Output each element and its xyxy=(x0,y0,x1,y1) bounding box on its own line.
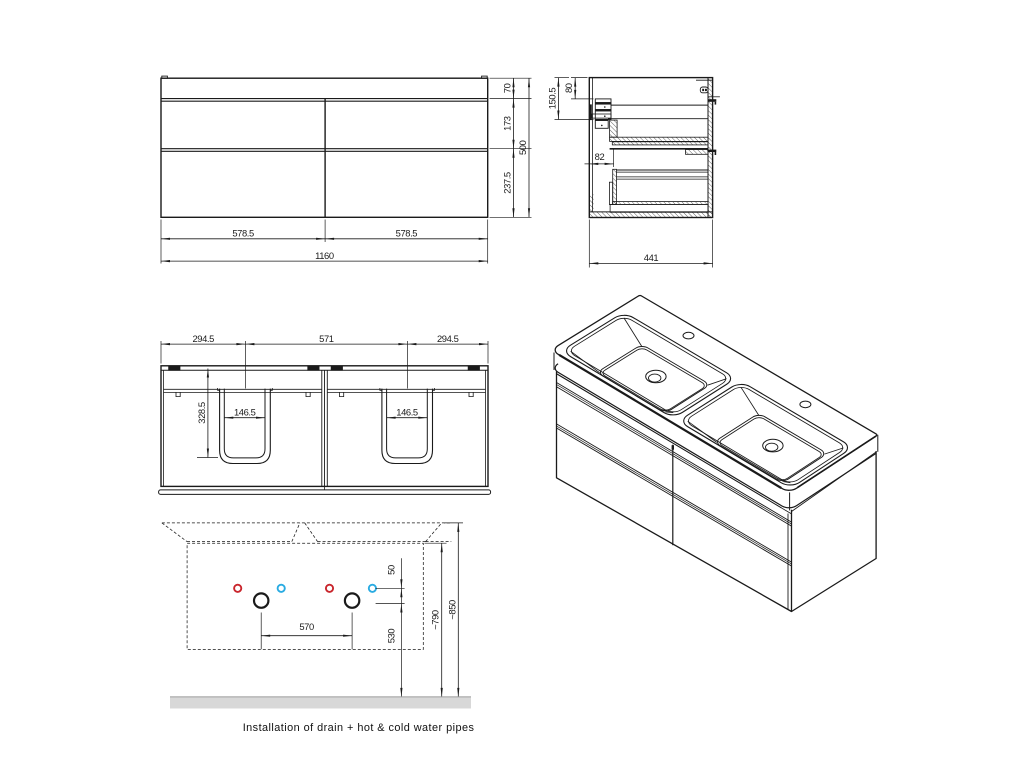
svg-text:~850: ~850 xyxy=(446,600,457,620)
svg-text:70: 70 xyxy=(502,83,513,93)
svg-text:173: 173 xyxy=(502,116,513,131)
svg-text:578.5: 578.5 xyxy=(232,228,254,239)
svg-text:146.5: 146.5 xyxy=(234,406,256,417)
svg-text:441: 441 xyxy=(644,252,659,263)
svg-text:150.5: 150.5 xyxy=(546,88,557,110)
svg-text:237.5: 237.5 xyxy=(502,172,513,194)
svg-text:294.5: 294.5 xyxy=(192,333,214,344)
svg-text:571: 571 xyxy=(319,333,334,344)
svg-text:328.5: 328.5 xyxy=(196,402,207,424)
svg-text:500: 500 xyxy=(517,140,528,155)
svg-text:530: 530 xyxy=(385,629,396,644)
svg-text:80: 80 xyxy=(563,83,574,93)
svg-text:50: 50 xyxy=(385,565,396,575)
svg-text:Installation of drain + hot &: Installation of drain + hot & cold water… xyxy=(243,722,475,734)
svg-text:578.5: 578.5 xyxy=(396,228,418,239)
svg-text:82: 82 xyxy=(595,151,605,162)
svg-text:~790: ~790 xyxy=(430,610,441,630)
svg-text:1160: 1160 xyxy=(315,250,334,261)
svg-text:570: 570 xyxy=(299,621,314,632)
svg-text:146.5: 146.5 xyxy=(396,406,418,417)
svg-text:294.5: 294.5 xyxy=(437,333,459,344)
